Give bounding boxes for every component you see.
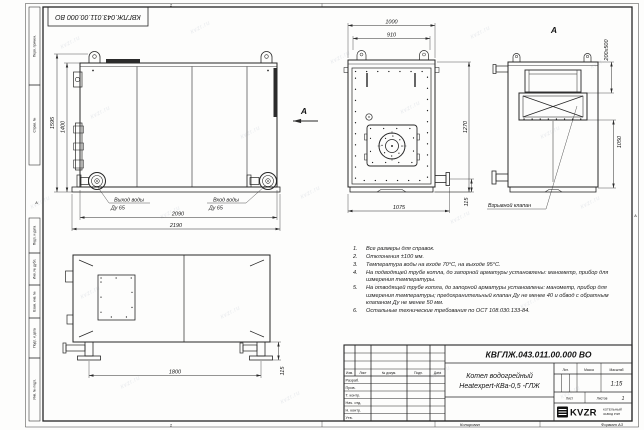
technical-notes: 1. Все размеры для справок. 2. Отклонени…: [352, 246, 626, 316]
base-skid: [72, 187, 280, 192]
boiler-front: [348, 60, 435, 187]
row-tkontr: Т. контр.: [346, 394, 361, 398]
top-docnumber-stamp: КВГЛЖ.043.011.00.000 ВО: [48, 7, 148, 26]
stamp-sprav-no: Справ. №: [33, 117, 37, 132]
view-arrow-label: А: [300, 106, 307, 116]
inlet-label: Вход воды: [213, 198, 239, 204]
leg: [257, 342, 265, 356]
boiler-plan: [73, 255, 270, 342]
dim-top-leg-span: 1800: [169, 370, 182, 376]
lifting-lug: [89, 52, 100, 63]
burner-flange: [378, 131, 407, 161]
note-number: 4.: [352, 270, 366, 284]
sheet-label: Лист: [566, 397, 574, 401]
frame-left-stamps: Перв. примен. Справ. № Подп. и дата Инв.…: [29, 7, 40, 421]
format-label: Формат А3: [601, 422, 624, 427]
top-pad: [106, 59, 140, 63]
dim-side-height-body: 1400: [61, 120, 67, 133]
dim-rear-height: 1050: [617, 135, 623, 148]
zone-letter-right: А: [634, 214, 637, 218]
note-text: Отклонения ±100 мм.: [366, 254, 626, 261]
row-utv: Утв.: [346, 416, 353, 420]
note-number: 1.: [352, 246, 366, 253]
company-name-line1: КОТЕЛЬНЫЙ: [603, 408, 622, 412]
outlet-label: Выход воды: [114, 198, 144, 204]
lifting-lug: [261, 52, 272, 63]
drawing-canvas: 2 2 А А Перв. примен. Справ. № Подп. и д…: [0, 0, 644, 430]
rear-pipe: [435, 176, 446, 183]
stamp-vzam-inv: Взам. инв. №: [33, 291, 37, 312]
copied-label: Копировал: [460, 422, 481, 427]
pipe-arm: [243, 345, 257, 351]
note-number: 2.: [352, 254, 366, 261]
zone-number-bottom: 2: [170, 423, 172, 427]
leg: [85, 342, 93, 356]
stamp-podp-data-1: Подп. и дата: [33, 226, 37, 246]
side-ladder: [76, 123, 83, 170]
note-item: 5. На отводящей трубе котла, до запорной…: [352, 285, 626, 306]
dim-side-width-total: 2190: [169, 223, 183, 229]
side-bracket: [74, 72, 83, 87]
inlet-dn: Ду 65: [208, 206, 223, 212]
mass-label: Масса: [584, 368, 594, 372]
zone-number-top: 2: [170, 4, 172, 8]
col-data: Дата: [434, 371, 441, 375]
company-logo: KVZR КОТЕЛЬНЫЙ ЗАВОД РЭП: [557, 407, 622, 419]
title-block: Изм. Лист № докум. Подп. Дата Разраб. Пр…: [344, 345, 632, 421]
row-nkontr: Н. контр.: [346, 409, 362, 413]
note-text: Остальные технические требования по ОСТ …: [366, 308, 626, 315]
note-item: 4. На подводящей трубе котла, до запорно…: [352, 270, 626, 284]
dim-front-width-inner: 910: [387, 33, 397, 39]
stamp-podp-data-2: Подп. и дата: [33, 328, 37, 348]
top-hatch: [98, 275, 135, 320]
note-item: 3. Температура воды на входе 70°С, на вы…: [352, 262, 626, 269]
outlet-dn: Ду 65: [110, 206, 125, 212]
col-list: Лист: [359, 371, 367, 375]
flue-strip: [274, 68, 278, 117]
lifting-lug: [357, 51, 366, 61]
stamp-inv-podl: Инв. № подл.: [33, 379, 37, 400]
stamp-inv-dubl: Инв. № дубл.: [33, 259, 37, 279]
view-side: 1595 1400 2090 2190 Выход воды Ду 65 Вхо…: [50, 52, 318, 232]
side-bracket: [66, 271, 74, 282]
note-item: 2. Отклонения ±100 мм.: [352, 254, 626, 261]
logo-text: KVZR: [570, 408, 597, 419]
pipe-arm: [66, 345, 85, 351]
dim-side-width-body: 2090: [171, 212, 185, 218]
lit-label: Лит.: [562, 368, 568, 372]
product-name-line2: Heatexpert-КВа-0,5 -ГЛЖ: [459, 383, 540, 390]
company-name-line2: ЗАВОД РЭП: [603, 412, 620, 416]
view-a-title: А: [550, 25, 557, 35]
drawing-sheet: kvzr.ru kvzr.ru kvzr.ru kvzr.ru kvzr.ru …: [0, 0, 644, 430]
dim-front-pipe-height: 115: [464, 197, 470, 207]
note-text: Все размеры для справок.: [366, 246, 626, 253]
explosion-valve-label: Взрывной клапан: [488, 202, 531, 209]
stamp-perv-primen: Перв. примен.: [33, 35, 37, 57]
row-prov: Пров.: [346, 386, 356, 390]
col-podp: Подп.: [414, 371, 423, 375]
dim-side-height-total: 1595: [50, 116, 56, 129]
note-number: 6.: [352, 308, 366, 315]
scale-label: Масштаб: [609, 368, 623, 372]
flue-duct: [525, 70, 581, 92]
note-item: 1. Все размеры для справок.: [352, 246, 626, 253]
dim-front-height: 1270: [463, 120, 469, 133]
sheets-value: 1: [622, 396, 625, 402]
pipe-stub-bottom: [496, 174, 508, 181]
doc-number: КВГЛЖ.043.011.00.000 ВО: [486, 350, 592, 360]
sheet-frame: 2 2 А А Перв. примен. Справ. № Подп. и д…: [26, 4, 639, 428]
note-item: 6. Остальные технические требования по О…: [352, 308, 626, 315]
dim-rear-opening: 200х500: [604, 39, 610, 62]
view-top: 1800 115: [63, 255, 286, 378]
view-rear: А 200х500: [487, 25, 623, 209]
doc-number-rotated: КВГЛЖ.043.011.00.000 ВО: [55, 13, 141, 20]
zone-letter-left: А: [35, 201, 38, 205]
scale-value: 1:15: [611, 382, 623, 388]
note-text: Температура воды на входе 70°С, на выход…: [366, 262, 626, 269]
product-name-line1: Котел водогрейный: [466, 372, 533, 380]
lifting-lug: [420, 51, 429, 61]
dim-front-width-bottom: 1075: [393, 205, 406, 211]
row-nachotd: Нач. отд.: [346, 401, 362, 405]
sheets-label: Листов: [597, 397, 608, 401]
note-text: На отводящей трубе котла, до запорной ар…: [366, 285, 626, 306]
note-text: На подводящей трубе котла, до запорной а…: [366, 270, 626, 284]
col-docnum: № докум.: [382, 371, 397, 375]
dim-top-leg-height: 115: [280, 366, 286, 376]
note-number: 5.: [352, 285, 366, 306]
boiler-body: [80, 63, 277, 187]
row-razrab: Разраб.: [346, 379, 360, 383]
view-front: 1000 910 1270 115 1075: [344, 20, 474, 214]
dim-front-width-total: 1000: [385, 20, 398, 26]
col-izm: Изм.: [346, 371, 353, 375]
note-number: 3.: [352, 262, 366, 269]
front-panel: [352, 68, 431, 184]
pipe-stub-top: [496, 66, 508, 72]
